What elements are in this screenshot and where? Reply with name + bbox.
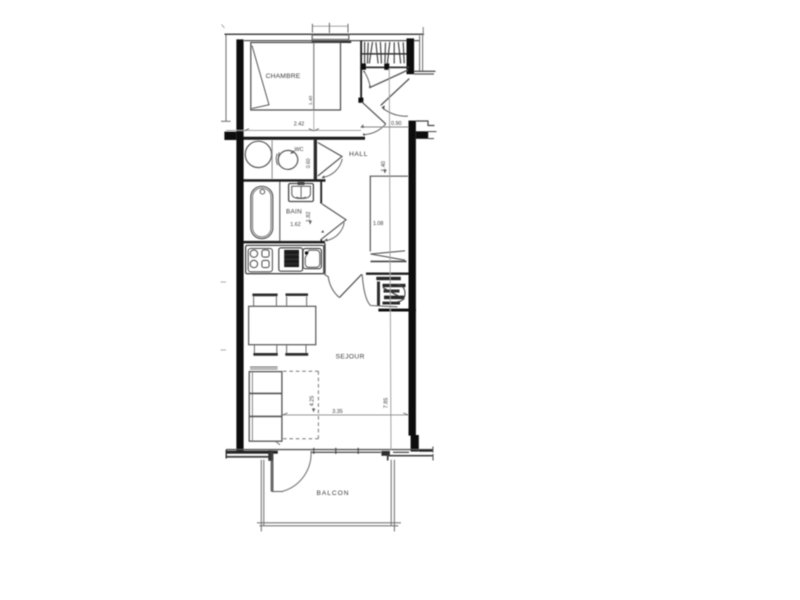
svg-text:BALCON: BALCON: [316, 490, 349, 497]
svg-text:4.25: 4.25: [309, 396, 315, 407]
svg-text:3.35: 3.35: [332, 409, 343, 415]
svg-text:7.85: 7.85: [384, 398, 390, 409]
svg-text:WC: WC: [295, 147, 304, 153]
svg-text:1.82: 1.82: [306, 212, 312, 223]
svg-text:2.42: 2.42: [294, 121, 305, 127]
svg-text:SEJOUR: SEJOUR: [336, 354, 365, 361]
svg-text:0.60: 0.60: [306, 158, 312, 168]
svg-text:CHAMBRE: CHAMBRE: [266, 73, 301, 80]
svg-text:1.08: 1.08: [373, 221, 384, 227]
svg-text:0.90: 0.90: [391, 121, 402, 127]
svg-text:BAIN: BAIN: [286, 208, 302, 215]
svg-text:1.40: 1.40: [308, 96, 314, 106]
svg-text:1.62: 1.62: [290, 222, 301, 228]
svg-text:HALL: HALL: [349, 151, 368, 158]
